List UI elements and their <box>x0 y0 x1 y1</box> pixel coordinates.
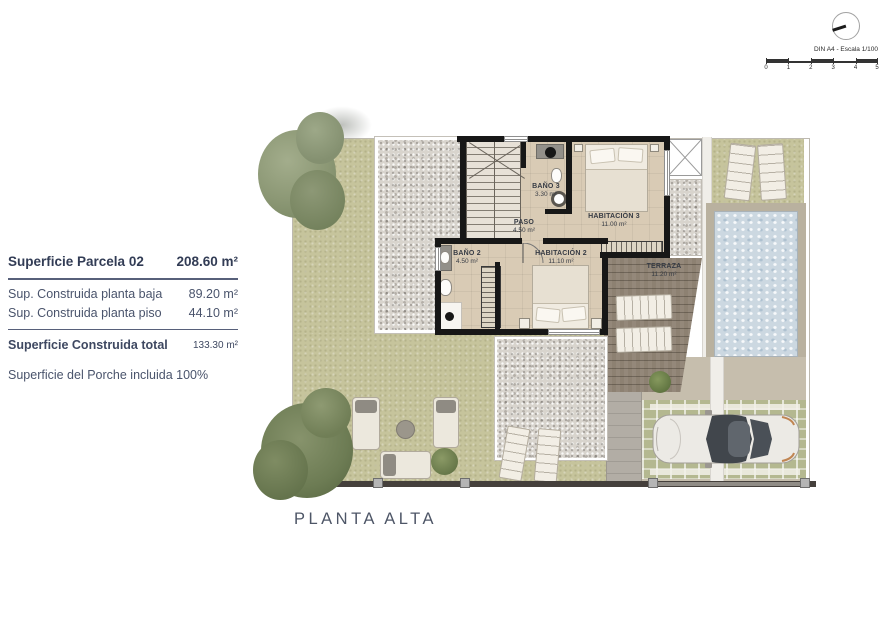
scale-tick <box>788 58 789 64</box>
porch-note: Superficie del Porche incluida 100% <box>8 368 238 382</box>
sun-lounger <box>616 326 673 353</box>
info-row: Sup. Construida planta baja 89.20 m² <box>8 285 238 304</box>
scale-tick-number: 2 <box>809 65 812 71</box>
room-label-bano3: BAÑO 33.30 m² <box>532 183 560 199</box>
sun-lounger <box>757 143 787 201</box>
scale-tick-number: 1 <box>787 65 790 71</box>
pillow <box>618 147 644 163</box>
wall <box>460 136 466 244</box>
parcel-value: 208.60 m² <box>176 252 238 272</box>
stair-rail <box>494 142 495 240</box>
scale-tick-number: 4 <box>854 65 857 71</box>
wall <box>566 136 572 214</box>
row-label: Sup. Construida planta baja <box>8 285 162 304</box>
scale-tick <box>811 58 812 64</box>
bathroom2-shower-drain <box>445 312 454 321</box>
shrub <box>431 448 458 475</box>
garden-sofa <box>433 397 459 448</box>
scale-tick <box>833 58 834 64</box>
bed-habitacion3 <box>585 144 648 212</box>
bed-habitacion2 <box>532 265 589 329</box>
wall <box>460 238 522 244</box>
room-label-bano2: BAÑO 24.50 m² <box>453 250 481 266</box>
scale-tick-number: 0 <box>764 65 767 71</box>
tree <box>253 388 363 503</box>
fence-post <box>800 478 810 488</box>
scale-tick-number: 5 <box>875 65 878 71</box>
wall <box>495 262 500 335</box>
wall <box>600 252 670 258</box>
terraza-plant <box>649 371 671 393</box>
fence-post <box>648 478 658 488</box>
scale-label: DIN A4 - Escala 1/100 <box>760 46 878 53</box>
scale-tick <box>877 58 878 64</box>
nightstand <box>519 318 530 329</box>
plan-title: PLANTA ALTA <box>294 510 437 529</box>
fence-post <box>373 478 383 488</box>
total-label: Superficie Construida total <box>8 336 168 355</box>
walkway <box>606 390 642 486</box>
row-value: 44.10 m² <box>189 304 238 323</box>
wall <box>602 252 608 335</box>
wall <box>545 209 572 214</box>
scale-tick-number: 3 <box>832 65 835 71</box>
scale-tick <box>766 58 767 64</box>
pillow <box>589 148 615 165</box>
garden-table <box>396 420 415 439</box>
wall <box>457 136 670 142</box>
parcel-label: Superficie Parcela 02 <box>8 252 144 272</box>
swimming-pool <box>714 211 798 357</box>
duvet <box>586 169 647 211</box>
built-surface-rows: Sup. Construida planta baja 89.20 m² Sup… <box>8 280 238 330</box>
nightstand <box>574 144 583 152</box>
bathroom3-sink <box>545 147 556 158</box>
scale-segment <box>856 59 878 62</box>
bathroom3-toilet <box>551 168 562 183</box>
room-label-habitacion3: HABITACIÓN 311.00 m² <box>588 213 640 229</box>
fence-post <box>460 478 470 488</box>
sun-lounger <box>534 428 562 483</box>
row-value: 89.20 m² <box>189 285 238 304</box>
scale-segment <box>766 59 788 62</box>
garden-sofa <box>380 451 431 479</box>
tree <box>258 112 358 232</box>
window <box>435 247 441 271</box>
row-label: Sup. Construida planta piso <box>8 304 162 323</box>
scale-segment <box>811 59 833 62</box>
room-label-paso: PASO4.50 m² <box>513 219 535 235</box>
scale-bar: 0 1 2 3 4 5 <box>766 57 878 75</box>
duvet <box>533 266 588 304</box>
parcel-row: Superficie Parcela 02 208.60 m² <box>8 252 238 280</box>
window <box>504 136 528 142</box>
sun-lounger <box>616 294 673 321</box>
window <box>664 150 670 196</box>
car <box>650 407 802 471</box>
scale-tick <box>856 58 857 64</box>
room-label-terraza: TERRAZA11.20 m² <box>647 263 682 279</box>
total-value: 133.30 m² <box>193 336 238 355</box>
surface-info-panel: Superficie Parcela 02 208.60 m² Sup. Con… <box>8 252 238 382</box>
wall <box>543 238 608 244</box>
room-label-habitacion2: HABITACIÓN 211.10 m² <box>535 250 587 266</box>
fence-light-segment <box>652 482 810 486</box>
drawing-sheet: { "sheet": { "scale_label": "DIN A4 - Es… <box>0 0 880 640</box>
skylight-box <box>668 139 702 176</box>
window <box>548 329 600 335</box>
pillow <box>561 306 586 322</box>
pillow <box>535 307 560 323</box>
info-row: Sup. Construida planta piso 44.10 m² <box>8 304 238 323</box>
gravel-strip <box>668 179 702 256</box>
nightstand <box>650 144 659 152</box>
total-row: Superficie Construida total 133.30 m² <box>8 330 238 355</box>
nightstand <box>591 318 602 329</box>
bathroom2-sink <box>440 251 450 264</box>
